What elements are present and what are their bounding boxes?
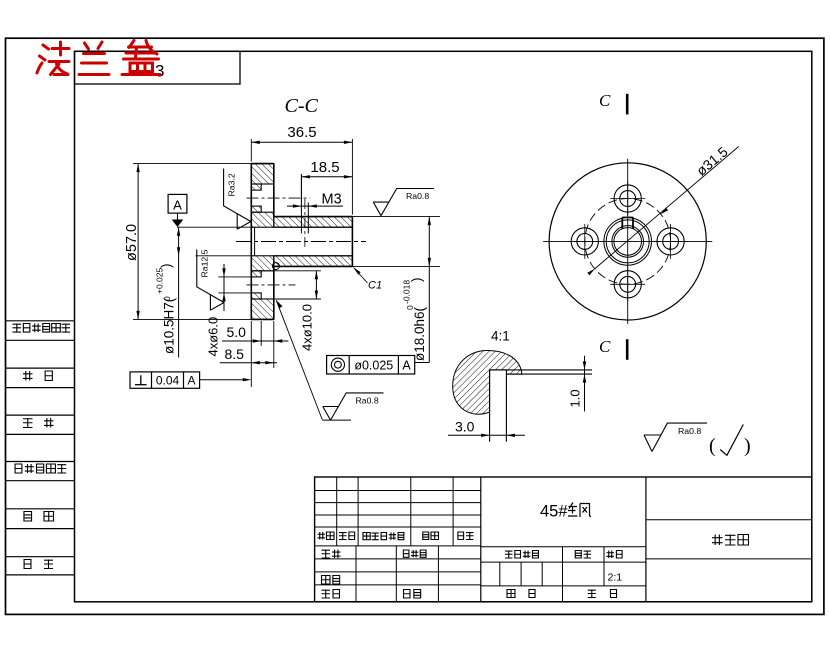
- svg-text:C1: C1: [368, 280, 382, 292]
- svg-text:18.5: 18.5: [310, 159, 339, 176]
- svg-text:2:1: 2:1: [608, 572, 623, 584]
- svg-text:ø18.0h6(: ø18.0h6(: [412, 306, 427, 361]
- svg-text:36.5: 36.5: [287, 124, 316, 141]
- svg-text:Ra0.8: Ra0.8: [356, 396, 379, 406]
- svg-text:ø0.025: ø0.025: [354, 358, 393, 372]
- svg-text:-0.018: -0.018: [402, 280, 412, 304]
- svg-text:3.0: 3.0: [455, 419, 475, 435]
- svg-text:A: A: [173, 198, 182, 213]
- svg-text:Ra12.5: Ra12.5: [200, 249, 210, 277]
- svg-text:1.0: 1.0: [568, 389, 583, 407]
- svg-text:Ra0.8: Ra0.8: [406, 191, 429, 201]
- svg-text:): ): [409, 278, 424, 283]
- svg-text:M3: M3: [322, 192, 342, 208]
- svg-text:3: 3: [155, 62, 164, 81]
- svg-text:): ): [159, 264, 174, 269]
- svg-text:A: A: [187, 374, 195, 388]
- svg-text:5.0: 5.0: [227, 324, 247, 340]
- svg-text:4:1: 4:1: [491, 329, 510, 344]
- svg-text:C: C: [599, 91, 611, 110]
- svg-text:): ): [744, 435, 751, 457]
- svg-text:+0.025: +0.025: [155, 267, 165, 294]
- svg-text:ø10.5H7(: ø10.5H7(: [162, 297, 177, 354]
- svg-text:0: 0: [162, 296, 172, 301]
- svg-text:45#: 45#: [540, 503, 568, 521]
- svg-text:4xø6.0: 4xø6.0: [206, 317, 221, 357]
- svg-text:Ra3.2: Ra3.2: [226, 173, 236, 196]
- svg-text:A: A: [402, 358, 411, 372]
- svg-text:(: (: [709, 435, 716, 457]
- svg-text:0.04: 0.04: [156, 374, 180, 388]
- svg-text:C-C: C-C: [285, 95, 319, 117]
- svg-text:C: C: [599, 337, 611, 356]
- svg-text:Ra0.8: Ra0.8: [678, 426, 701, 436]
- svg-text:4xø10.0: 4xø10.0: [300, 304, 315, 351]
- svg-text:ø57.0: ø57.0: [124, 224, 140, 261]
- svg-text:8.5: 8.5: [225, 346, 245, 362]
- svg-text:0: 0: [405, 305, 415, 310]
